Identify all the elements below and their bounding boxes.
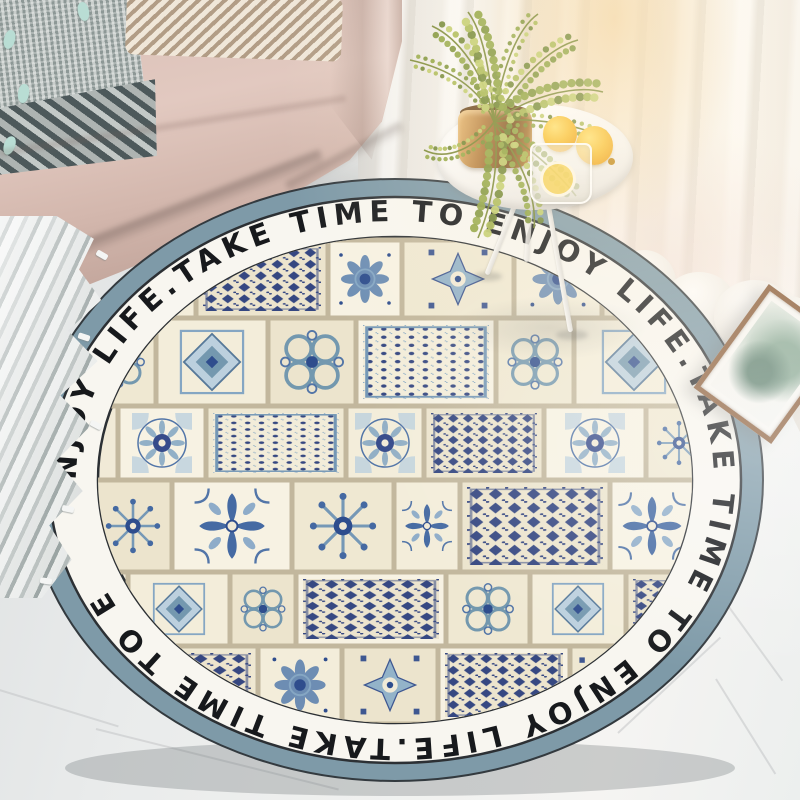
fern-leaf: [493, 198, 501, 206]
fern-leaf: [543, 84, 551, 92]
fern-leaf: [524, 113, 528, 117]
fern-leaf: [486, 41, 494, 49]
fern-leaf: [439, 36, 445, 42]
fern-leaf: [491, 206, 499, 214]
fern-leaf: [559, 80, 567, 88]
fern-leaf: [508, 41, 512, 45]
lemon-tip: [608, 158, 615, 165]
fern-leaf: [440, 74, 444, 78]
fern-leaf: [414, 65, 418, 69]
fern-leaf: [462, 18, 470, 26]
fern-leaf: [506, 155, 512, 161]
fern-leaf: [504, 49, 508, 53]
fern-leaf: [430, 59, 434, 63]
lemon-slice: [540, 161, 576, 197]
fern-leaf: [485, 149, 493, 157]
fern-leaf: [464, 43, 470, 49]
fern-leaf: [506, 75, 510, 79]
fern-leaf: [499, 103, 507, 111]
fern-leaf: [520, 20, 524, 24]
fern-leaf: [433, 32, 439, 38]
fern-leaf: [481, 140, 485, 144]
fern-leaf: [478, 129, 482, 133]
fern-leaf: [431, 156, 435, 160]
fern-leaf: [475, 209, 483, 217]
fern-leaf: [464, 76, 468, 80]
fern-leaf: [482, 180, 490, 188]
fern-leaf: [527, 77, 533, 83]
fern-leaf: [457, 143, 461, 147]
fern-leaf: [508, 81, 514, 87]
fern-leaf: [543, 46, 549, 52]
fern-leaf: [466, 138, 470, 142]
fern-leaf: [590, 93, 598, 101]
fern-leaf: [522, 83, 528, 89]
fern-leaf: [516, 27, 520, 31]
rug-tile-motif: [402, 501, 452, 551]
rug-tile-motif: [132, 413, 192, 473]
fern-leaf: [481, 125, 485, 129]
fern-leaf: [563, 48, 569, 54]
fern-leaf: [520, 39, 524, 43]
fern-leaf: [429, 145, 433, 149]
fern-leaf: [494, 135, 500, 141]
fern-leaf: [550, 56, 556, 62]
rug-tile-motif: [195, 489, 270, 564]
fern-leaf: [494, 80, 498, 84]
fern-leaf: [491, 95, 495, 99]
water-glass: [530, 143, 592, 204]
fern-leaf: [524, 63, 530, 69]
fern-leaf: [569, 93, 577, 101]
fern-leaf: [528, 89, 536, 97]
fern-leaf: [484, 164, 492, 172]
fern-leaf: [524, 32, 528, 36]
fern-leaf: [513, 95, 521, 103]
fern-leaf: [506, 99, 514, 107]
fern-leaf: [502, 148, 508, 154]
fern-leaf: [550, 41, 556, 47]
fern-leaf: [420, 67, 424, 71]
fern-leaf: [539, 124, 543, 128]
fern-leaf: [473, 217, 481, 225]
fern-leaf: [446, 77, 450, 81]
fern-leaf: [450, 46, 456, 52]
fern-leaf: [444, 41, 450, 47]
fern-leaf: [448, 146, 452, 150]
rug-tile-motif: [463, 584, 513, 634]
rug-tile-motif: [431, 413, 537, 473]
fern-leaf: [474, 52, 482, 60]
fern-leaf: [501, 56, 505, 60]
fern-leaf: [489, 56, 497, 64]
fern-leaf: [540, 100, 548, 108]
fern-leaf: [455, 155, 459, 159]
rug-tile-motif: [303, 579, 439, 639]
fern-leaf: [576, 78, 584, 86]
fern-leaf: [518, 69, 524, 75]
fern-leaf: [489, 214, 497, 222]
fern-leaf: [458, 85, 462, 89]
fern-leaf: [498, 95, 504, 101]
rug-tile-motif: [310, 493, 376, 559]
fern-leaf: [452, 81, 456, 85]
fern-leaf: [481, 103, 489, 111]
fern-leaf: [524, 137, 530, 143]
rug-tile-motif: [618, 492, 685, 559]
fern-leaf: [434, 71, 438, 75]
fern-leaf: [514, 53, 518, 57]
fern-leaf: [477, 104, 481, 108]
fern-leaf: [459, 57, 465, 63]
fern-leaf: [520, 156, 526, 162]
fern-leaf: [509, 161, 515, 167]
fern-leaf: [567, 79, 575, 87]
fern-leaf: [477, 202, 485, 210]
fern-leaf: [526, 13, 530, 17]
rug-tile-motif: [241, 587, 285, 631]
fern-leaf: [463, 63, 469, 69]
fern-leaf: [544, 61, 550, 67]
fern-leaf: [453, 31, 459, 37]
fern-leaf: [470, 224, 478, 232]
fern-leaf: [580, 122, 584, 126]
product-photo-round-rug: NJOY LIFE.TAKE TIME TO ENJOY LIFE.TAKE T…: [0, 0, 800, 800]
fern-leaf: [492, 87, 496, 91]
fern-leaf: [483, 229, 491, 237]
rug-tile-motif: [565, 413, 625, 473]
fern-leaf: [496, 72, 500, 76]
fern-leaf: [484, 157, 492, 165]
fern-leaf: [461, 153, 465, 157]
fern-leaf: [473, 98, 477, 102]
fern-leaf: [423, 57, 427, 61]
fern-leaf: [444, 65, 448, 69]
fern-leaf: [479, 195, 487, 203]
fern-leaf: [438, 147, 442, 151]
fern-leaf: [478, 74, 486, 82]
fern-leaf: [516, 175, 522, 181]
fern-leaf: [508, 135, 514, 141]
fern-leaf: [538, 66, 544, 72]
fern-leaf: [512, 128, 518, 134]
rug-tile-motif: [213, 413, 339, 473]
fern-leaf: [486, 221, 494, 229]
fern-leaf: [511, 60, 515, 64]
fern-leaf: [518, 132, 524, 138]
fern-leaf: [536, 86, 544, 94]
fern-leaf: [466, 150, 470, 154]
fern-leaf: [467, 70, 473, 76]
fern-leaf: [498, 166, 506, 174]
fern-leaf: [433, 146, 437, 150]
fern-leaf: [518, 182, 524, 188]
fern-leaf: [516, 123, 520, 127]
fern-leaf: [459, 37, 465, 43]
fern-leaf: [489, 103, 493, 107]
fern-leaf: [499, 64, 503, 68]
fern-leaf: [557, 37, 563, 43]
fern-leaf: [513, 75, 519, 81]
fern-leaf: [471, 77, 477, 83]
fern-leaf: [480, 187, 488, 195]
fern-leaf: [452, 145, 456, 149]
fern-leaf: [495, 190, 503, 198]
fern-leaf: [517, 46, 521, 50]
fern-leaf: [485, 136, 489, 140]
fern-leaf: [481, 96, 489, 104]
fern-leaf: [474, 11, 482, 19]
fern-leaf: [511, 34, 515, 38]
rug-tile-motif: [467, 487, 603, 565]
fern-leaf: [443, 147, 447, 151]
fern-leaf: [443, 157, 447, 161]
fern-leaf: [584, 78, 592, 86]
fern-leaf: [491, 64, 499, 72]
fern-leaf: [478, 18, 486, 26]
fern-leaf: [480, 88, 488, 96]
rug-tile-motif: [355, 413, 415, 473]
fern-leaf: [509, 67, 513, 71]
fern-leaf: [437, 157, 441, 161]
fern-leaf: [522, 196, 528, 202]
fern-leaf: [525, 210, 531, 216]
fern-leaf: [533, 71, 539, 77]
fern-leaf: [477, 66, 485, 74]
fern-leaf: [537, 209, 543, 215]
fern-leaf: [451, 68, 455, 72]
fern-leaf: [562, 94, 570, 102]
fern-leaf: [554, 96, 562, 104]
fern-leaf: [474, 132, 478, 136]
rug-tile-motif: [281, 331, 343, 393]
fern-leaf: [463, 89, 467, 93]
fern-leaf: [507, 113, 511, 117]
fern-leaf: [438, 62, 442, 66]
fern-leaf: [531, 124, 535, 128]
fern-leaf: [523, 123, 527, 127]
fern-leaf: [530, 57, 536, 63]
fern-leaf: [551, 82, 559, 90]
fern-leaf: [446, 26, 452, 32]
fern-leaf: [488, 48, 496, 56]
fern-leaf: [503, 88, 509, 94]
fern-leaf: [520, 92, 528, 100]
fern-leaf: [425, 155, 429, 159]
fern-leaf: [512, 168, 518, 174]
fern-leaf: [533, 21, 537, 25]
fern-leaf: [449, 156, 453, 160]
fern-leaf: [504, 129, 510, 135]
fern-leaf: [485, 142, 493, 150]
fern-leaf: [524, 203, 530, 209]
fern-leaf: [496, 182, 504, 190]
fern-leaf: [529, 26, 533, 30]
fern-leaf: [576, 93, 584, 101]
fern-leaf: [532, 113, 536, 117]
fern-leaf: [536, 51, 542, 57]
fern-leaf: [525, 217, 531, 223]
fern-leaf: [479, 81, 487, 89]
fern-leaf: [540, 114, 544, 118]
fern-leaf: [481, 26, 489, 34]
fern-leaf: [516, 149, 522, 155]
fern-leaf: [592, 79, 600, 87]
fern-leaf: [458, 72, 462, 76]
fern-leaf: [427, 69, 431, 73]
fern-leaf: [556, 52, 562, 58]
fern-leaf: [439, 21, 445, 27]
fern-leaf: [498, 142, 504, 148]
fern-leaf: [497, 174, 505, 182]
fern-leaf: [484, 33, 492, 41]
fern-leaf: [565, 34, 571, 40]
fern-leaf: [416, 55, 420, 59]
fern-leaf: [516, 113, 520, 117]
fern-leaf: [483, 172, 491, 180]
fern-leaf: [455, 51, 461, 57]
fern-leaf: [547, 98, 555, 106]
fern-leaf: [468, 93, 472, 97]
fern-leaf: [471, 147, 475, 151]
fern-leaf: [512, 142, 518, 148]
fern-leaf: [470, 135, 474, 139]
fern-leaf: [462, 141, 466, 145]
table-shadow: [452, 296, 648, 360]
fern-leaf: [521, 189, 527, 195]
fern-leaf: [476, 144, 480, 148]
fern-leaf: [569, 45, 575, 51]
fern-leaf: [475, 59, 483, 67]
fern-leaf: [472, 45, 480, 53]
fern-leaf: [537, 217, 543, 223]
fern-leaf: [489, 132, 493, 136]
rug-tile-motif: [106, 499, 160, 553]
